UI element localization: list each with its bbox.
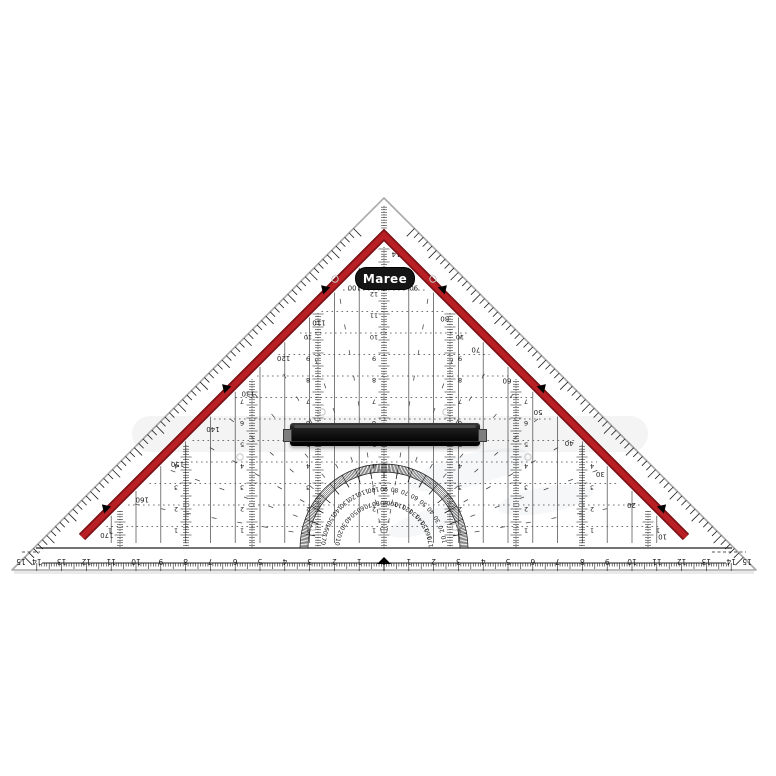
svg-text:1: 1 <box>174 527 178 535</box>
svg-text:3: 3 <box>458 484 462 492</box>
svg-text:4: 4 <box>282 557 287 566</box>
svg-text:7: 7 <box>458 398 462 406</box>
svg-text:5: 5 <box>505 557 510 566</box>
svg-text:7: 7 <box>240 398 244 406</box>
svg-text:5: 5 <box>524 441 528 449</box>
svg-text:2: 2 <box>524 505 528 513</box>
svg-text:10: 10 <box>440 535 448 544</box>
svg-text:4: 4 <box>458 462 462 470</box>
brand-logo-text: Maree <box>363 272 407 286</box>
svg-text:11: 11 <box>652 557 662 566</box>
svg-text:3: 3 <box>240 484 244 492</box>
svg-text:90: 90 <box>380 499 388 506</box>
svg-text:10: 10 <box>658 532 667 540</box>
svg-text:2: 2 <box>431 557 436 566</box>
svg-text:7: 7 <box>555 557 560 566</box>
svg-text:9: 9 <box>458 355 462 363</box>
svg-text:40: 40 <box>565 439 574 447</box>
svg-text:1: 1 <box>524 527 528 535</box>
svg-text:9: 9 <box>306 355 310 363</box>
svg-text:10: 10 <box>627 557 637 566</box>
svg-text:12: 12 <box>81 557 91 566</box>
svg-text:15: 15 <box>16 557 26 566</box>
svg-text:5: 5 <box>257 557 262 566</box>
svg-text:60: 60 <box>503 377 512 385</box>
svg-text:4: 4 <box>306 462 310 470</box>
grip-handle <box>290 423 480 446</box>
svg-text:10: 10 <box>456 333 464 341</box>
svg-text:6: 6 <box>240 419 244 427</box>
svg-text:13: 13 <box>57 557 67 566</box>
svg-text:14: 14 <box>32 557 42 566</box>
svg-text:110: 110 <box>312 319 325 327</box>
svg-text:7: 7 <box>208 557 213 566</box>
svg-text:3: 3 <box>456 557 461 566</box>
svg-text:1: 1 <box>406 557 411 566</box>
svg-text:1: 1 <box>372 527 376 535</box>
svg-text:11: 11 <box>106 557 116 566</box>
svg-text:8: 8 <box>372 376 376 384</box>
svg-text:3: 3 <box>174 484 178 492</box>
svg-text:7: 7 <box>372 398 376 406</box>
svg-text:20: 20 <box>627 501 636 509</box>
svg-text:1: 1 <box>240 527 244 535</box>
svg-text:8: 8 <box>580 557 585 566</box>
svg-text:140: 140 <box>206 425 219 433</box>
svg-text:2: 2 <box>590 505 594 513</box>
svg-text:4: 4 <box>481 557 486 566</box>
svg-text:10: 10 <box>131 557 141 566</box>
svg-text:80: 80 <box>390 485 399 493</box>
svg-text:130: 130 <box>242 389 255 397</box>
svg-text:6: 6 <box>524 419 528 427</box>
svg-text:3: 3 <box>524 484 528 492</box>
svg-text:10: 10 <box>333 537 341 546</box>
svg-text:8: 8 <box>458 376 462 384</box>
svg-text:50: 50 <box>534 408 543 416</box>
svg-text:14: 14 <box>726 557 736 566</box>
svg-text:10: 10 <box>304 333 312 341</box>
svg-text:12: 12 <box>677 557 687 566</box>
svg-text:8: 8 <box>306 376 310 384</box>
svg-text:2: 2 <box>332 557 337 566</box>
set-square-graphic: 1234567891011121312345678910123456789101… <box>0 0 776 776</box>
svg-text:160: 160 <box>136 495 149 503</box>
svg-text:70: 70 <box>471 346 480 354</box>
svg-text:9: 9 <box>372 355 376 363</box>
svg-text:4: 4 <box>590 462 594 470</box>
svg-text:6: 6 <box>233 557 238 566</box>
svg-text:9: 9 <box>605 557 610 566</box>
svg-text:120: 120 <box>277 354 290 362</box>
svg-text:7: 7 <box>524 398 528 406</box>
svg-text:170: 170 <box>100 531 113 539</box>
svg-text:7: 7 <box>306 398 310 406</box>
svg-text:8: 8 <box>183 557 188 566</box>
svg-text:2: 2 <box>174 505 178 513</box>
svg-text:11: 11 <box>370 312 378 320</box>
svg-text:150: 150 <box>171 460 184 468</box>
svg-text:6: 6 <box>530 557 535 566</box>
brand-logo: Maree <box>356 268 414 289</box>
svg-text:4: 4 <box>524 462 528 470</box>
plate-shadow <box>14 571 754 574</box>
svg-text:12: 12 <box>370 290 378 298</box>
svg-text:10: 10 <box>370 333 378 341</box>
svg-text:1: 1 <box>590 527 594 535</box>
svg-text:3: 3 <box>307 557 312 566</box>
product-photo: 1234567891011121312345678910123456789101… <box>0 0 776 776</box>
grip-handle-highlight <box>294 425 476 428</box>
svg-text:80: 80 <box>440 314 449 322</box>
svg-text:90: 90 <box>380 485 388 492</box>
svg-text:13: 13 <box>701 557 711 566</box>
svg-text:15: 15 <box>742 557 752 566</box>
svg-text:2: 2 <box>240 505 244 513</box>
svg-text:3: 3 <box>590 484 594 492</box>
svg-text:3: 3 <box>306 484 310 492</box>
svg-text:4: 4 <box>240 462 244 470</box>
svg-text:1: 1 <box>357 557 362 566</box>
svg-text:5: 5 <box>240 441 244 449</box>
svg-text:9: 9 <box>158 557 163 566</box>
grip-handle-seam <box>292 441 478 442</box>
svg-text:30: 30 <box>596 470 605 478</box>
